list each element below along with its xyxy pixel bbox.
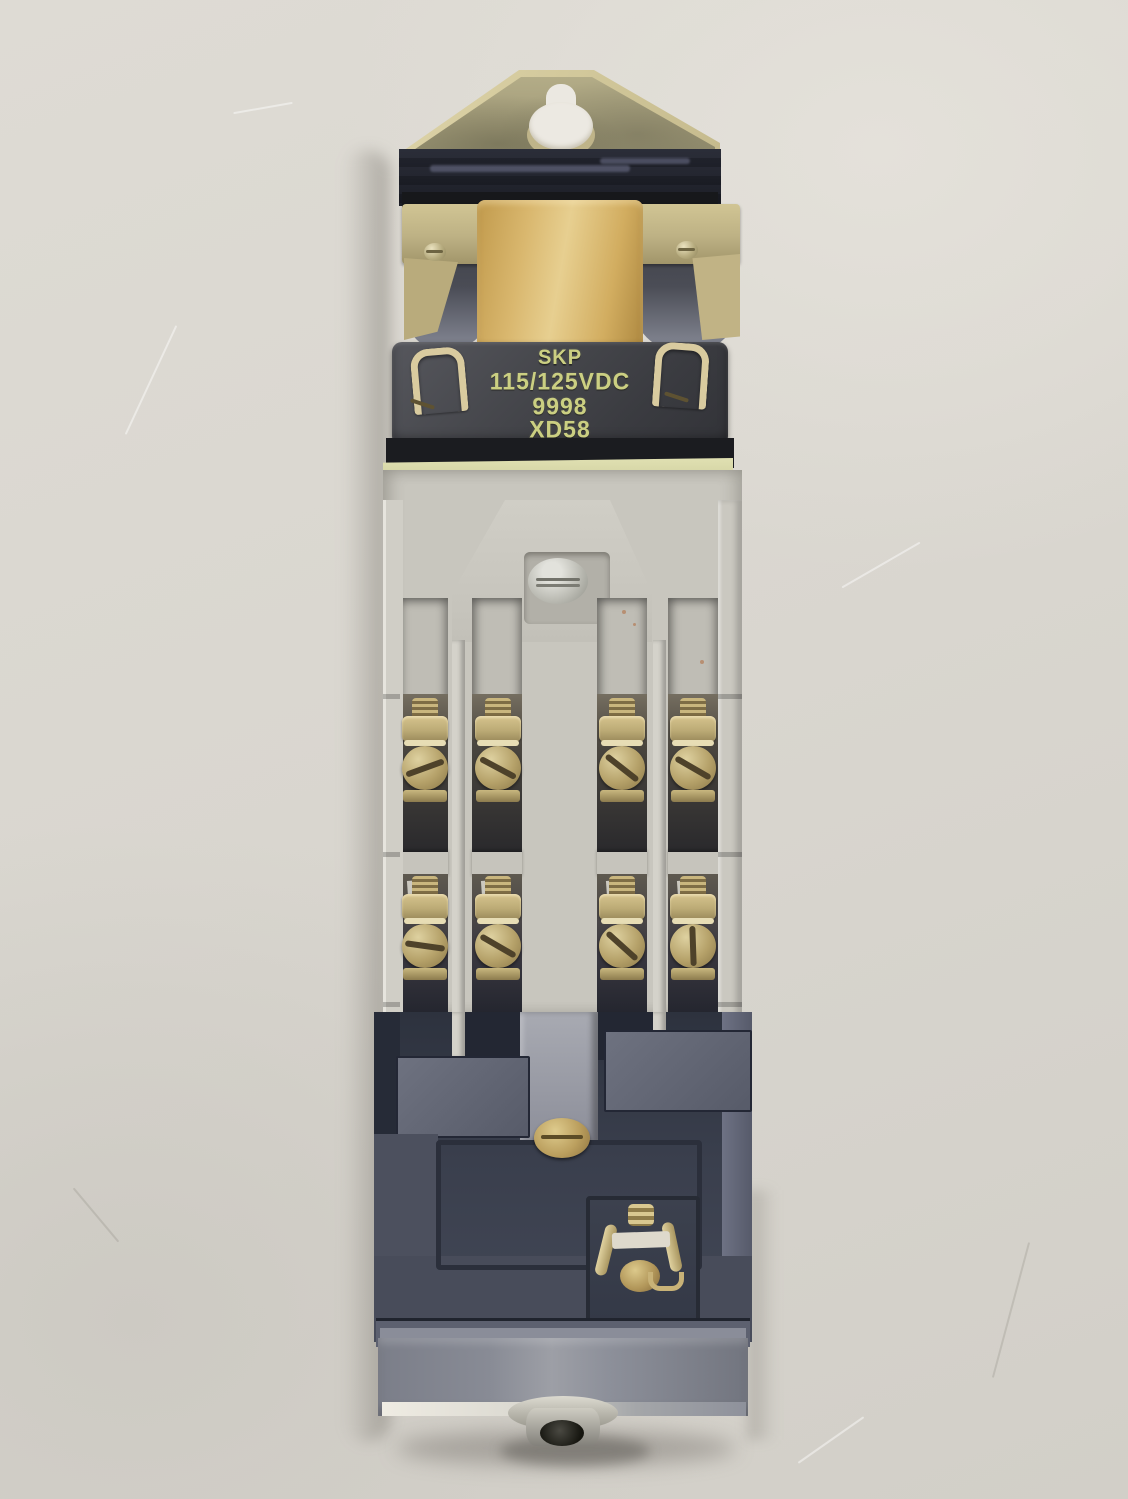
screw-clamp: [402, 894, 448, 920]
clip-screw: [660, 385, 694, 411]
frame-screw-left: [424, 243, 446, 261]
side-rail-right: [718, 500, 742, 1016]
screw-clamp: [670, 716, 716, 742]
terminal-screw: [598, 876, 646, 980]
center-screw: [528, 558, 588, 604]
screw-head: [599, 924, 645, 968]
coil-terminal-clip-left: [404, 346, 466, 432]
screw-base-bar: [600, 968, 644, 980]
screw-slot: [405, 758, 445, 777]
core-lamination-streak: [430, 165, 630, 172]
housing-slab-left: [374, 1134, 438, 1264]
side-rail-left: [383, 500, 403, 1016]
screw-slot: [479, 756, 517, 780]
terminal-screw: [598, 698, 646, 802]
screw-clamp: [599, 716, 645, 742]
paper-scratch: [992, 1242, 1030, 1378]
screw-head: [599, 746, 645, 790]
frame-screw-right: [676, 241, 698, 259]
housing-panel-left: [396, 1056, 530, 1138]
terminal-screw: [401, 876, 449, 980]
screw-base-bar: [671, 968, 715, 980]
keyhole-slot-hole: [529, 102, 593, 150]
terminal-screw: [401, 698, 449, 802]
paper-scratch: [125, 325, 178, 435]
rust-speck: [622, 610, 626, 614]
rail-notch: [383, 852, 400, 857]
photo-scene: SKP 115/125VDC 9998 XD58: [0, 0, 1128, 1499]
screw-slot: [674, 755, 712, 780]
screw-base-bar: [600, 790, 644, 802]
screw-slot: [479, 933, 517, 958]
screw-clamp: [475, 716, 521, 742]
bottom-stud-bore: [540, 1420, 584, 1446]
screw-base-bar: [403, 968, 447, 980]
screw-base-bar: [476, 790, 520, 802]
screw-head: [670, 924, 716, 968]
screw-head: [402, 746, 448, 790]
screw-slot: [405, 940, 445, 952]
housing-center-screw: [534, 1118, 590, 1158]
divider-rib: [653, 640, 666, 1058]
aux-clip-ceramic-bar: [612, 1231, 671, 1249]
coil-wrap: [477, 200, 643, 350]
divider-rib-tail: [452, 1012, 465, 1058]
screw-base-bar: [476, 968, 520, 980]
rust-speck: [700, 660, 704, 664]
device-shadow-right: [748, 1190, 776, 1440]
rail-notch: [383, 1002, 400, 1007]
screw-base-bar: [403, 790, 447, 802]
screw-slot: [604, 753, 639, 782]
rail-notch: [718, 852, 742, 857]
rust-speck: [633, 623, 636, 626]
housing-panel-right: [604, 1030, 752, 1112]
rail-notch: [718, 694, 742, 699]
terminal-screw: [474, 698, 522, 802]
screw-clamp: [670, 894, 716, 920]
screw-head: [402, 924, 448, 968]
paper-scratch: [73, 1188, 120, 1243]
coil-terminal-clip-right: [644, 341, 706, 425]
screw-slot: [605, 930, 639, 961]
terminal-screw: [669, 698, 717, 802]
aux-clip-wire-hook: [648, 1272, 684, 1291]
aux-terminal-screw-tip: [628, 1204, 654, 1226]
screw-head: [670, 746, 716, 790]
terminal-screw: [474, 876, 522, 980]
paper-scratch: [233, 102, 292, 114]
screw-head: [475, 924, 521, 968]
screw-base-bar: [671, 790, 715, 802]
rail-notch: [383, 694, 400, 699]
rail-notch: [718, 1002, 742, 1007]
clip-screw: [406, 392, 440, 418]
terminal-screw: [669, 876, 717, 980]
screw-head: [475, 746, 521, 790]
paper-scratch: [798, 1416, 865, 1464]
core-lamination-streak: [600, 158, 690, 164]
screw-clamp: [402, 716, 448, 742]
paper-scratch: [842, 542, 921, 589]
screw-clamp: [475, 894, 521, 920]
divider-rib: [452, 640, 465, 1058]
screw-clamp: [599, 894, 645, 920]
screw-slot: [689, 926, 696, 966]
